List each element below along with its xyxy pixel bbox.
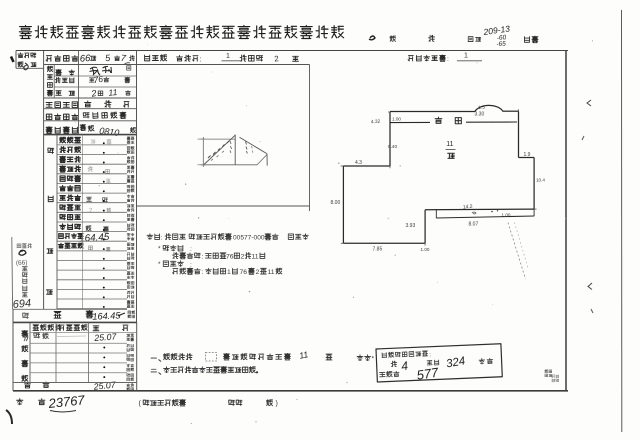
svg-text:3.93: 3.93 bbox=[406, 223, 416, 229]
svg-text:11: 11 bbox=[268, 269, 275, 276]
svg-text:8.00: 8.00 bbox=[331, 200, 341, 206]
svg-text:00577-000: 00577-000 bbox=[233, 234, 265, 241]
svg-text::: : bbox=[447, 56, 449, 63]
svg-text:11: 11 bbox=[108, 87, 118, 98]
svg-text:1: 1 bbox=[227, 269, 231, 276]
svg-text:2: 2 bbox=[256, 269, 260, 276]
svg-text:1.00: 1.00 bbox=[392, 117, 401, 122]
svg-text:2: 2 bbox=[241, 253, 245, 260]
svg-text:7.85: 7.85 bbox=[373, 246, 383, 252]
svg-text:11: 11 bbox=[252, 253, 259, 260]
svg-text::: : bbox=[200, 57, 202, 64]
svg-text:164.45: 164.45 bbox=[92, 310, 121, 322]
svg-text:-65: -65 bbox=[496, 40, 506, 48]
svg-text:76: 76 bbox=[240, 269, 248, 276]
svg-text:0.40: 0.40 bbox=[388, 144, 398, 150]
svg-text:164.45: 164.45 bbox=[79, 232, 110, 245]
svg-text:1: 1 bbox=[226, 53, 230, 60]
svg-text:25.07: 25.07 bbox=[93, 331, 118, 343]
svg-text::: : bbox=[161, 234, 163, 241]
svg-text:): ) bbox=[276, 401, 278, 408]
svg-text:10.4: 10.4 bbox=[536, 178, 545, 183]
svg-text:3.30: 3.30 bbox=[475, 112, 485, 118]
svg-text:1.00: 1.00 bbox=[421, 247, 430, 252]
svg-text:76: 76 bbox=[93, 74, 104, 85]
svg-text:4.32: 4.32 bbox=[371, 119, 381, 126]
svg-text:11: 11 bbox=[446, 141, 453, 148]
svg-text::: : bbox=[202, 253, 204, 260]
svg-text:1: 1 bbox=[464, 53, 468, 60]
svg-text:76: 76 bbox=[226, 253, 234, 260]
svg-text::: : bbox=[190, 261, 192, 268]
svg-text:(66): (66) bbox=[16, 259, 28, 267]
svg-text::: : bbox=[202, 269, 204, 276]
svg-text:4.3: 4.3 bbox=[355, 160, 362, 166]
svg-text:8.07: 8.07 bbox=[469, 221, 479, 227]
svg-text::: : bbox=[190, 246, 192, 253]
svg-text:66: 66 bbox=[79, 53, 91, 65]
